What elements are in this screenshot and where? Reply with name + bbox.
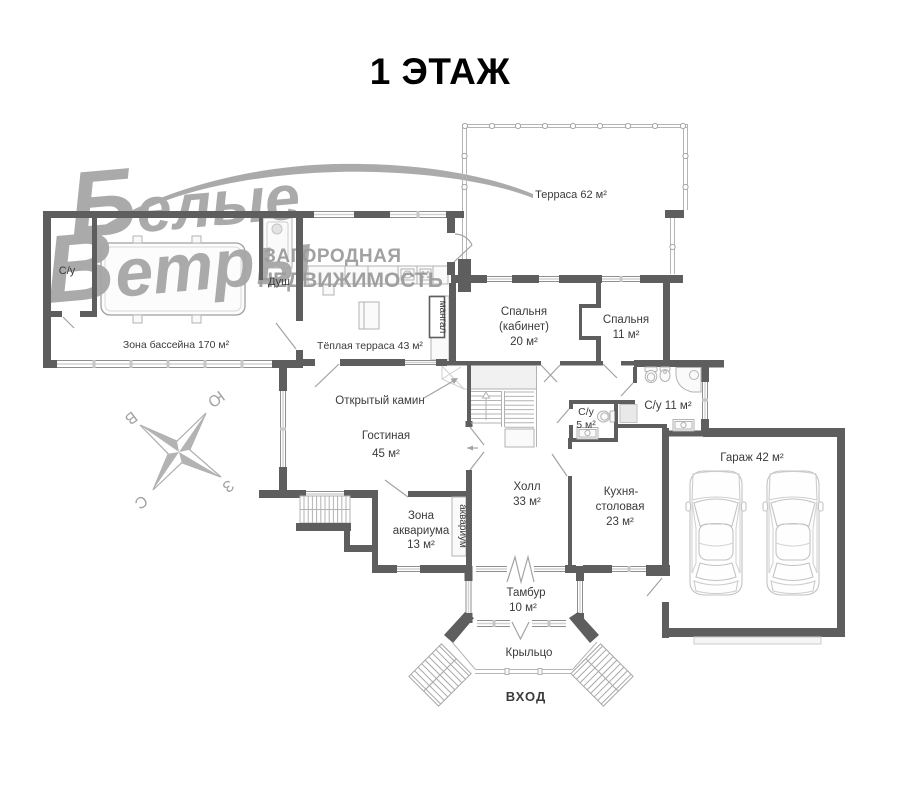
svg-text:мангал: мангал — [437, 301, 448, 334]
svg-text:33 м²: 33 м² — [513, 496, 541, 508]
svg-text:45 м²: 45 м² — [372, 448, 400, 460]
svg-text:11 м²: 11 м² — [613, 329, 640, 341]
svg-text:(кабинет): (кабинет) — [499, 321, 549, 333]
svg-text:Холл: Холл — [513, 481, 540, 493]
svg-text:столовая: столовая — [596, 501, 645, 513]
svg-text:1 ЭТАЖ: 1 ЭТАЖ — [370, 51, 511, 92]
svg-text:20 м²: 20 м² — [510, 336, 538, 348]
svg-text:Зона бассейна 170 м²: Зона бассейна 170 м² — [123, 339, 230, 351]
svg-text:ВХОД: ВХОД — [506, 689, 546, 704]
svg-text:10 м²: 10 м² — [509, 602, 537, 614]
svg-text:5 м²: 5 м² — [576, 419, 596, 431]
svg-text:С/у: С/у — [59, 265, 76, 277]
svg-text:Гараж 42 м²: Гараж 42 м² — [720, 452, 784, 464]
svg-text:Крыльцо: Крыльцо — [506, 647, 553, 659]
svg-text:Спальня: Спальня — [501, 306, 547, 318]
svg-text:С/у: С/у — [578, 406, 595, 418]
svg-text:Кухня-: Кухня- — [604, 486, 639, 498]
svg-text:Спальня: Спальня — [603, 314, 649, 326]
svg-text:23 м²: 23 м² — [606, 516, 634, 528]
svg-text:Открытый камин: Открытый камин — [335, 395, 424, 407]
svg-text:Гостиная: Гостиная — [362, 430, 410, 442]
svg-text:Душ: Душ — [268, 276, 290, 288]
svg-text:ЗАГОРОДНАЯ: ЗАГОРОДНАЯ — [264, 246, 402, 267]
svg-text:Тамбур: Тамбур — [506, 587, 545, 599]
svg-text:13 м²: 13 м² — [407, 539, 435, 551]
svg-text:Терраса 62 м²: Терраса 62 м² — [535, 189, 607, 201]
svg-text:С/у 11 м²: С/у 11 м² — [644, 400, 691, 412]
svg-text:Тёплая терраса 43 м²: Тёплая терраса 43 м² — [317, 340, 423, 352]
svg-text:Зона: Зона — [408, 510, 435, 522]
svg-text:аквариума: аквариума — [393, 525, 450, 537]
